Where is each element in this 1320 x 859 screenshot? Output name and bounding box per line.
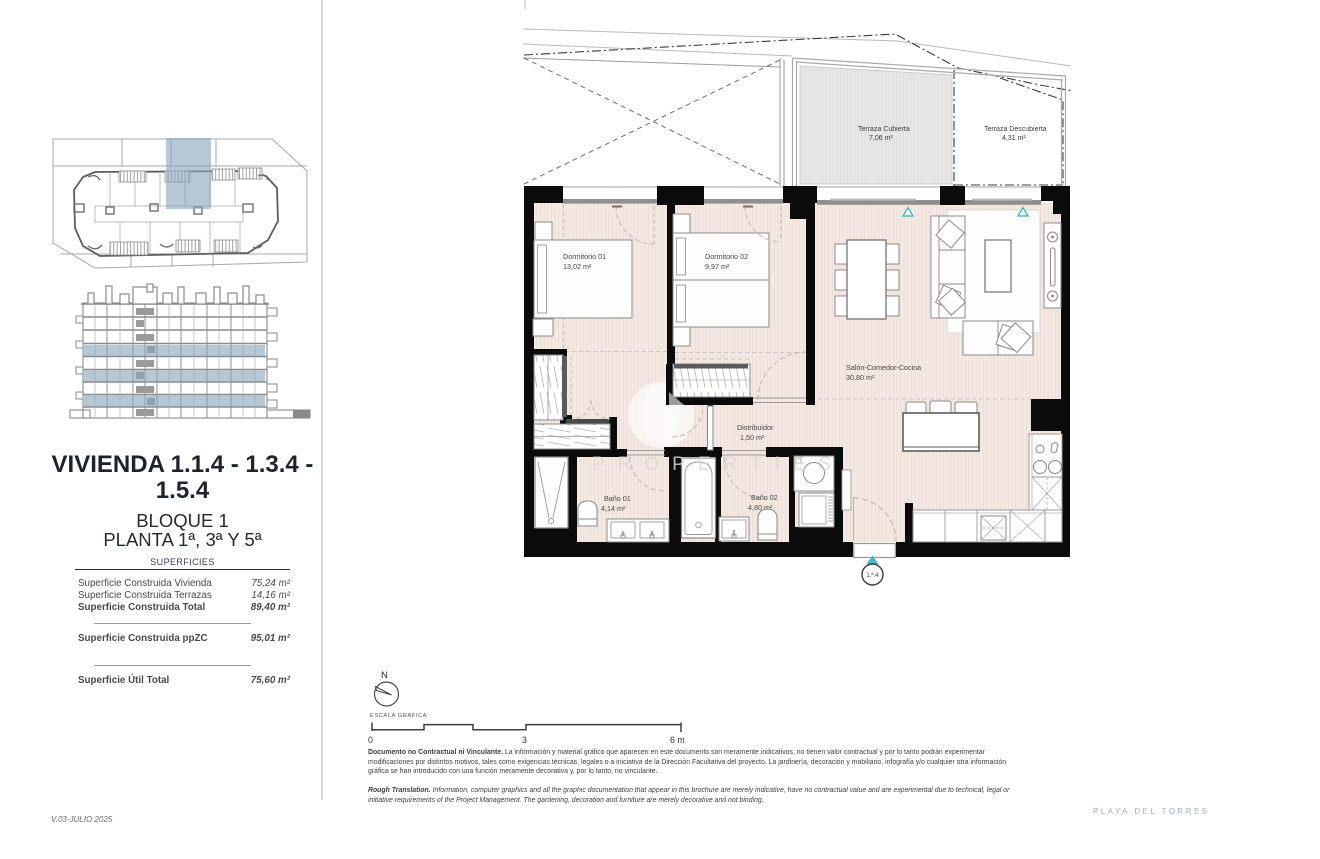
svg-text:9,97 m²: 9,97 m² [705, 262, 730, 271]
svg-text:Terraza Cubierta: Terraza Cubierta [858, 126, 910, 133]
svg-text:0: 0 [368, 735, 373, 745]
svg-text:13,02 m²: 13,02 m² [563, 262, 592, 271]
svg-text:Dormitorio 02: Dormitorio 02 [705, 252, 748, 261]
svg-text:N: N [381, 670, 388, 681]
svg-text:PROPERTIES: PROPERTIES [592, 454, 844, 475]
svg-text:3: 3 [522, 735, 527, 745]
svg-text:Dormitorio 01: Dormitorio 01 [563, 252, 606, 261]
svg-text:ESCALA GRÁFICA: ESCALA GRÁFICA [370, 712, 427, 719]
svg-text:Salón-Comedor-Cocina: Salón-Comedor-Cocina [846, 363, 921, 372]
svg-text:6 m: 6 m [670, 735, 685, 745]
svg-text:4,31 m²: 4,31 m² [1002, 135, 1026, 142]
svg-text:1,50 m²: 1,50 m² [740, 433, 765, 442]
svg-text:Distribuidor: Distribuidor [737, 423, 774, 432]
svg-text:4,14 m²: 4,14 m² [601, 504, 626, 513]
svg-text:Baño 01: Baño 01 [604, 494, 631, 503]
svg-text:30,80 m²: 30,80 m² [846, 373, 875, 382]
svg-text:1.ª.4: 1.ª.4 [866, 572, 879, 579]
svg-text:Baño 02: Baño 02 [751, 493, 778, 502]
svg-text:7,06 m²: 7,06 m² [869, 135, 893, 142]
svg-text:Terraza Descubierta: Terraza Descubierta [984, 126, 1047, 133]
